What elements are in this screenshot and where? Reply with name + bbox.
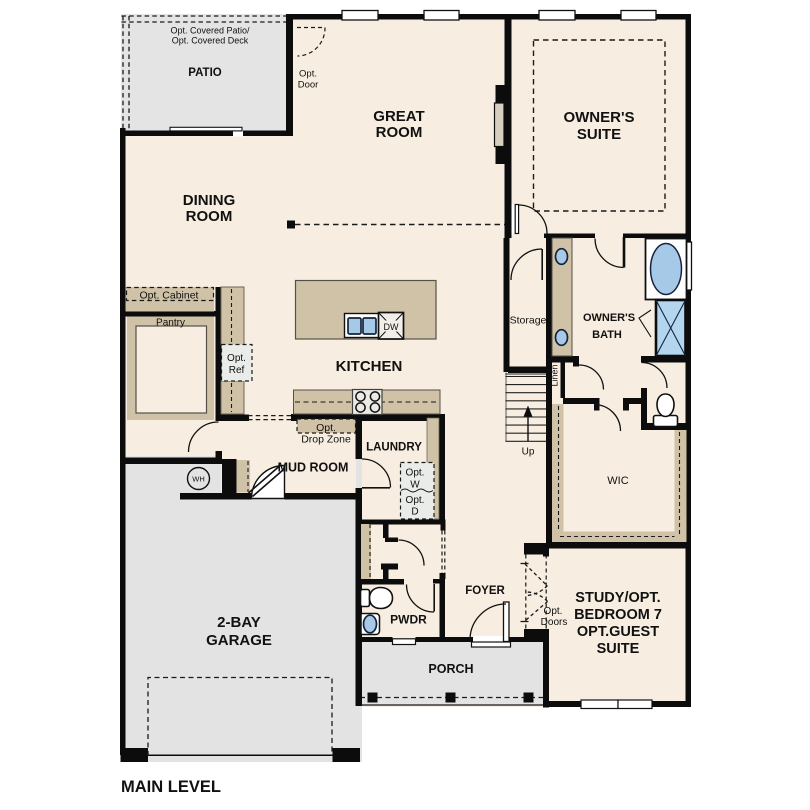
svg-text:DW: DW [384, 322, 399, 332]
svg-text:Opt.: Opt. [406, 495, 425, 506]
svg-text:SUITE: SUITE [577, 126, 621, 143]
svg-text:2-BAY: 2-BAY [217, 614, 261, 631]
svg-text:ROOM: ROOM [376, 124, 423, 141]
svg-text:DINING: DINING [183, 192, 236, 209]
svg-text:Door: Door [298, 80, 319, 91]
svg-text:Opt.: Opt. [299, 69, 317, 80]
svg-text:KITCHEN: KITCHEN [336, 358, 403, 375]
svg-text:BEDROOM 7: BEDROOM 7 [574, 607, 662, 623]
svg-text:OWNER'S: OWNER'S [583, 312, 635, 324]
svg-text:MAIN LEVEL: MAIN LEVEL [121, 778, 221, 796]
svg-text:LAUNDRY: LAUNDRY [366, 442, 422, 454]
svg-text:Opt.: Opt. [544, 606, 563, 617]
svg-text:GREAT: GREAT [373, 108, 424, 125]
svg-text:Opt. Covered Patio/: Opt. Covered Patio/ [170, 26, 250, 36]
svg-text:WIC: WIC [607, 475, 628, 487]
svg-text:MUD ROOM: MUD ROOM [278, 461, 349, 475]
svg-text:SUITE: SUITE [597, 641, 640, 657]
svg-text:STUDY/OPT.: STUDY/OPT. [575, 590, 660, 606]
svg-text:OPT.GUEST: OPT.GUEST [577, 624, 659, 640]
svg-text:Opt. Cabinet: Opt. Cabinet [140, 290, 199, 302]
svg-text:Doors: Doors [541, 617, 568, 628]
svg-text:Drop Zone: Drop Zone [301, 434, 351, 446]
svg-text:Opt.: Opt. [406, 468, 425, 479]
svg-text:Pantry: Pantry [156, 318, 185, 329]
svg-text:GARAGE: GARAGE [206, 632, 272, 649]
svg-text:ROOM: ROOM [186, 208, 233, 225]
svg-text:PWDR: PWDR [390, 613, 427, 627]
svg-text:Ref: Ref [229, 365, 245, 376]
svg-text:FOYER: FOYER [465, 585, 505, 597]
svg-text:BATH: BATH [592, 329, 622, 341]
svg-text:W: W [410, 480, 420, 491]
svg-text:D: D [411, 507, 418, 518]
svg-text:PATIO: PATIO [188, 67, 221, 79]
svg-text:Linen: Linen [550, 364, 560, 386]
svg-text:Storage: Storage [510, 315, 547, 327]
svg-text:Up: Up [522, 447, 535, 458]
svg-text:OWNER'S: OWNER'S [563, 109, 634, 126]
svg-text:PORCH: PORCH [428, 662, 473, 676]
svg-text:Opt. Covered Deck: Opt. Covered Deck [172, 36, 249, 46]
svg-text:Opt.: Opt. [227, 353, 246, 364]
svg-text:Opt.: Opt. [316, 422, 336, 434]
svg-text:WH: WH [192, 475, 205, 484]
